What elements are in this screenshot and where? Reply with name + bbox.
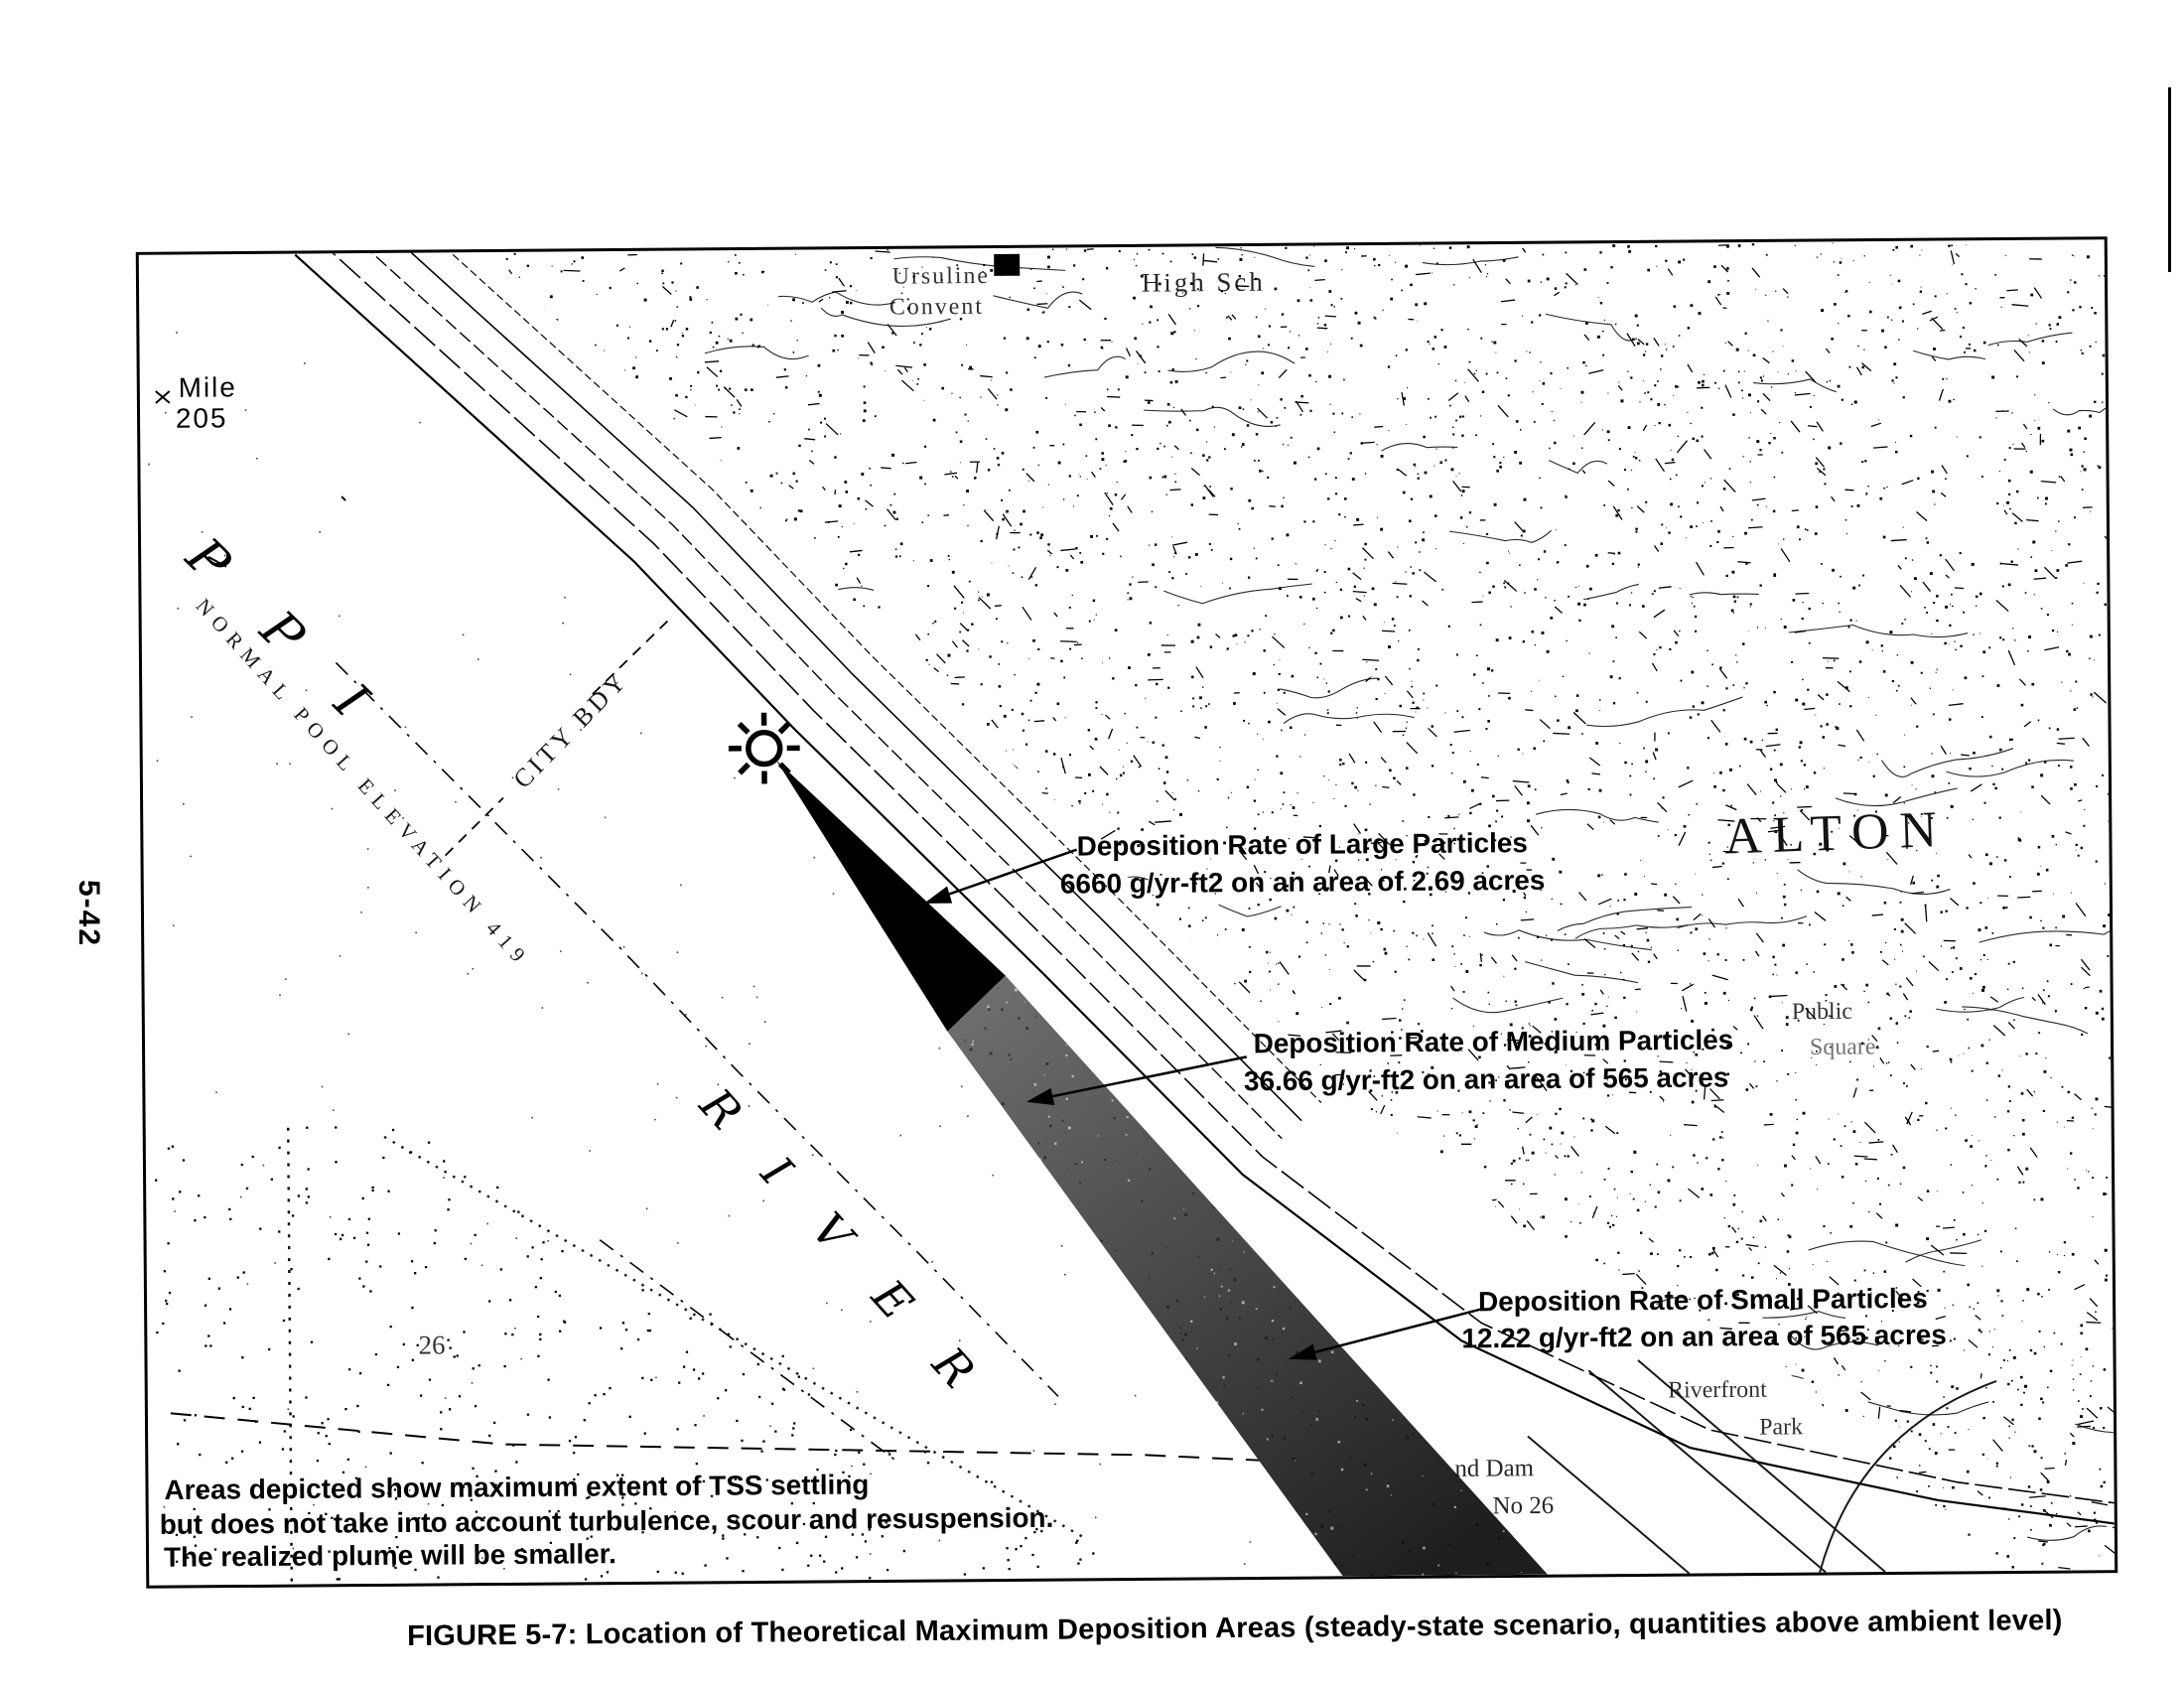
river-linework [156,382,1330,1584]
road-line-2 [354,239,1301,1128]
plume-small-medium-particles-area [947,971,1548,1579]
medium-particles-annotation-line1: Deposition Rate of Medium Particles [1254,1025,1734,1059]
city-topographic-texture [139,239,2115,1586]
road-line-3 [373,239,1320,1110]
figure-caption: FIGURE 5-7: Location of Theoretical Maxi… [407,1605,2035,1653]
mile-marker-line2: 205 [176,402,228,433]
map-building-block [994,254,1020,276]
dam-label-line2: No 26 [1492,1492,1554,1519]
river-name-lower: RIVER [689,1077,1024,1441]
convent-label-line2: Convent [889,294,984,321]
arrow-large-particles [931,850,1077,901]
tss-note-line3: The realized plume will be smaller. [164,1538,616,1573]
convent-label-line1: Ursuline [892,263,991,290]
small-particles-annotation-line2: 12.22 g/yr-ft2 on an area of 565 acres [1461,1320,1947,1354]
large-particles-annotation-line1: Deposition Rate of Large Particles [1077,827,1528,862]
generated-texture [147,324,1251,1574]
public-square-line2: Square [1810,1034,1876,1060]
road-line-1 [335,239,1282,1146]
high-school-label: High Sch [1142,267,1266,298]
generated-texture [139,239,2115,1586]
topographic-map: PPI RIVER NORMAL POOL ELEVATION 419 CITY… [139,239,2115,1586]
tss-note-line2: but does not take into account turbulenc… [160,1502,1054,1540]
page-number-sideways: 5-42 [71,880,105,947]
plume-large-particles-area [776,759,1006,1034]
generated-texture [139,241,2115,1586]
tss-note-line1: Areas depicted show maximum extent of TS… [164,1469,869,1505]
bank-dashline [171,1404,1329,1473]
pool-elevation-label: NORMAL POOL ELEVATION 419 [192,594,535,972]
river-area-texture [147,324,1251,1585]
generated-texture [143,240,2115,1559]
river-name-upper: PPI [174,526,428,777]
arrowhead-large-particles [927,889,950,903]
island-number-label: 26 [418,1330,445,1359]
mile-marker-cross [156,391,170,403]
riverfront-park-line1: Riverfront [1668,1377,1767,1404]
map-frame: PPI RIVER NORMAL POOL ELEVATION 419 CITY… [136,236,2118,1589]
scan-edge-artifact [2168,87,2171,272]
riverfront-park-line2: Park [1759,1414,1803,1440]
small-particles-annotation-line1: Deposition Rate of Small Particles [1478,1283,1928,1318]
city-boundary-label: CITY BDY [507,665,633,794]
scanned-page: 5-42 [0,0,2184,1684]
medium-particles-annotation-line2: 36.66 g/yr-ft2 on an area of 565 acres [1244,1061,1729,1096]
dam-label-line1: nd Dam [1454,1455,1534,1482]
mile-marker-line1: Mile [179,371,237,402]
city-name-label: ALTON [1723,801,1949,866]
large-particles-annotation-line2: 6660 g/yr-ft2 on an area of 2.69 acres [1060,865,1546,900]
public-square-line1: Public [1792,999,1852,1025]
